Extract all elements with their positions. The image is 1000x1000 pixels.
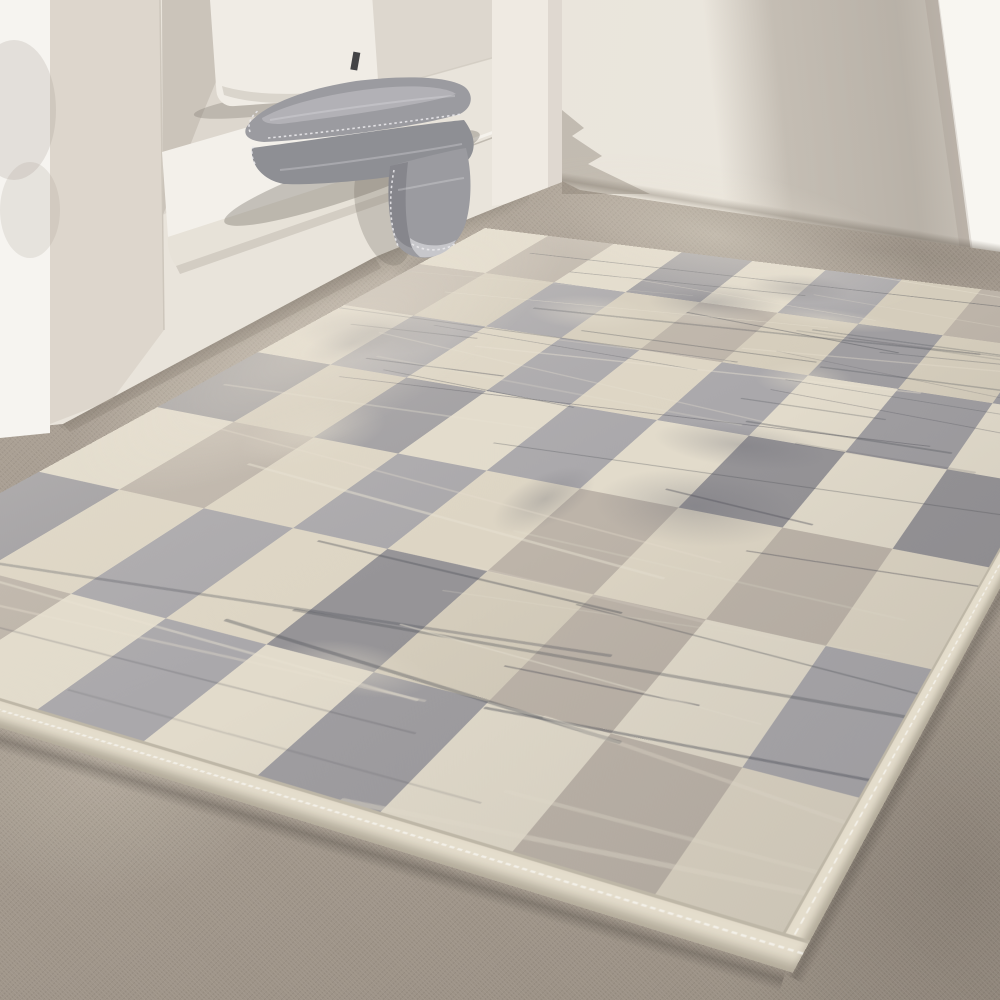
photo-stage: [0, 0, 1000, 1000]
blanket-layer: [0, 0, 1000, 1000]
